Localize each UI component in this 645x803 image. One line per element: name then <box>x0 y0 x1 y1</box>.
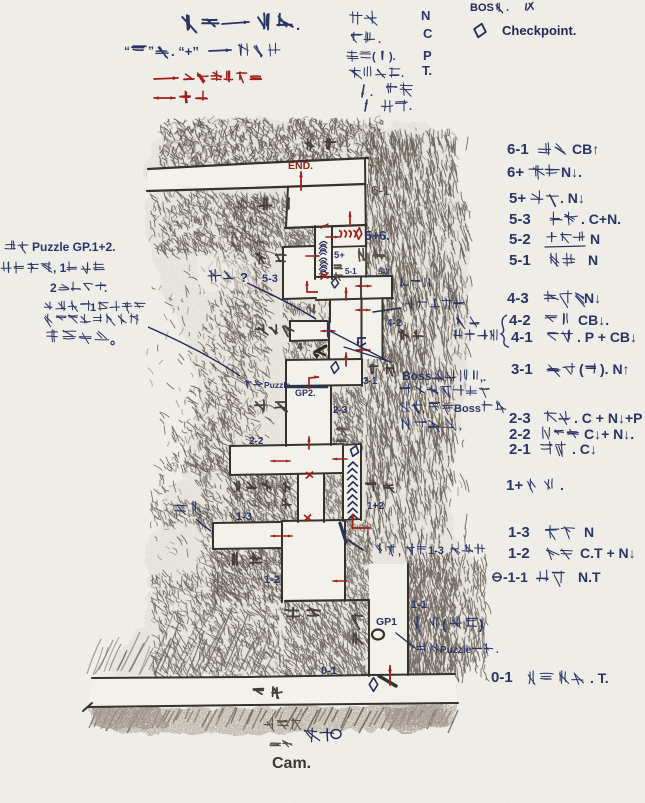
svg-text:. T.: . T. <box>590 670 609 686</box>
svg-text:Checkpoint.: Checkpoint. <box>502 23 576 38</box>
svg-text:CB↓.: CB↓. <box>578 312 609 328</box>
svg-text:.: . <box>296 17 300 34</box>
svg-text:N.T: N.T <box>578 569 601 585</box>
svg-text:4-2: 4-2 <box>509 312 531 329</box>
svg-text:4: 4 <box>297 342 303 353</box>
svg-text:N↓: N↓ <box>584 290 601 306</box>
svg-text:1-2: 1-2 <box>264 574 280 586</box>
svg-text:2-3: 2-3 <box>509 410 531 427</box>
svg-text:.: . <box>409 101 412 113</box>
svg-text:5-1: 5-1 <box>345 267 357 276</box>
svg-text:C.T + N↓: C.T + N↓ <box>580 545 636 561</box>
svg-text:1: 1 <box>90 302 96 314</box>
svg-text:1-3: 1-3 <box>428 545 444 557</box>
svg-text:,: , <box>398 546 401 558</box>
svg-text:P: P <box>423 48 432 63</box>
svg-text:). N↑: ). N↑ <box>600 361 630 377</box>
svg-text:1-3: 1-3 <box>508 524 530 541</box>
svg-text:.: . <box>370 87 373 99</box>
svg-text:.: . <box>104 281 107 295</box>
svg-text:Puzzle GP.1+2.: Puzzle GP.1+2. <box>32 240 116 254</box>
svg-text:0-1: 0-1 <box>491 669 513 686</box>
svg-text:2-3: 2-3 <box>333 405 348 416</box>
svg-text:5-2: 5-2 <box>509 231 531 248</box>
svg-text:.: . <box>506 2 509 14</box>
svg-text:N: N <box>421 8 430 23</box>
svg-text:(: ( <box>579 361 584 377</box>
svg-text:. C↓: . C↓ <box>572 441 597 457</box>
svg-text:Boss: Boss <box>454 403 481 415</box>
svg-text:. “+”: . “+” <box>171 44 199 59</box>
svg-text:).: ). <box>389 51 396 63</box>
svg-text:GP1: GP1 <box>376 616 397 628</box>
svg-text:2: 2 <box>50 281 57 295</box>
svg-text:Cam.: Cam. <box>272 755 311 772</box>
svg-text:N: N <box>588 252 598 268</box>
svg-text:N: N <box>584 524 594 540</box>
svg-text:6-1: 6-1 <box>507 141 529 158</box>
svg-text:,.: ,. <box>480 372 486 384</box>
svg-text:C↓+ N↓.: C↓+ N↓. <box>584 426 634 442</box>
svg-text:, 1: , 1 <box>53 261 67 275</box>
svg-text:”: ” <box>148 44 154 58</box>
svg-text:5-2: 5-2 <box>378 268 390 277</box>
svg-text:1+: 1+ <box>506 477 523 494</box>
svg-text:5-3: 5-3 <box>509 211 531 228</box>
svg-text:0-1: 0-1 <box>321 665 337 677</box>
svg-text:CB↑: CB↑ <box>572 141 599 157</box>
svg-text:. C+N.: . C+N. <box>581 211 621 227</box>
svg-text:5+: 5+ <box>509 190 526 207</box>
svg-text:Boss: Boss <box>402 369 432 383</box>
svg-text:. P + CB↓: . P + CB↓ <box>577 329 637 345</box>
svg-text:5-3: 5-3 <box>262 273 278 285</box>
svg-text:(: ( <box>372 51 376 63</box>
svg-text:C: C <box>423 26 433 41</box>
svg-text:GP2.: GP2. <box>295 388 316 398</box>
svg-text:5+6.: 5+6. <box>365 229 390 243</box>
svg-text:-1-1: -1-1 <box>503 569 528 585</box>
svg-text:4-1: 4-1 <box>511 329 533 346</box>
svg-text:N: N <box>590 231 600 247</box>
svg-text:1+2: 1+2 <box>367 501 384 512</box>
svg-text:6+: 6+ <box>507 164 524 181</box>
svg-text:.: . <box>401 68 404 80</box>
svg-text:END.: END. <box>288 160 313 172</box>
svg-text:Puzzle: Puzzle <box>264 380 291 390</box>
svg-text:“: “ <box>124 44 130 58</box>
svg-text:3-1: 3-1 <box>363 376 378 387</box>
svg-text:. C + N↓+P: . C + N↓+P <box>574 410 642 426</box>
svg-text:1-1: 1-1 <box>411 599 427 611</box>
svg-text:6-1: 6-1 <box>371 183 390 198</box>
svg-text:BOS: BOS <box>470 2 494 14</box>
svg-text:3-1: 3-1 <box>511 361 533 378</box>
svg-text:): ) <box>479 616 484 632</box>
svg-text:。: 。 <box>110 332 123 347</box>
svg-text:.: . <box>560 477 564 493</box>
svg-text:. N↓: . N↓ <box>560 190 585 206</box>
svg-text:1-3: 1-3 <box>236 511 252 523</box>
svg-text:2-1: 2-1 <box>509 441 531 458</box>
svg-text:5+: 5+ <box>334 250 345 261</box>
svg-text:4-3: 4-3 <box>507 290 529 307</box>
svg-text:.: . <box>459 421 462 433</box>
svg-text:(: ( <box>442 616 447 632</box>
svg-text:?: ? <box>240 270 248 285</box>
svg-text:.: . <box>496 645 499 656</box>
svg-text:4-2: 4-2 <box>387 318 402 329</box>
svg-text:,: , <box>422 403 425 415</box>
svg-text:5-1: 5-1 <box>509 252 531 269</box>
svg-text:T.: T. <box>422 63 432 78</box>
svg-text:N↓.: N↓. <box>561 164 582 180</box>
svg-text:.: . <box>378 34 381 46</box>
svg-text:Puzzle: Puzzle <box>440 645 472 656</box>
svg-text:1-2: 1-2 <box>508 545 530 562</box>
svg-text:2-2: 2-2 <box>249 436 264 447</box>
